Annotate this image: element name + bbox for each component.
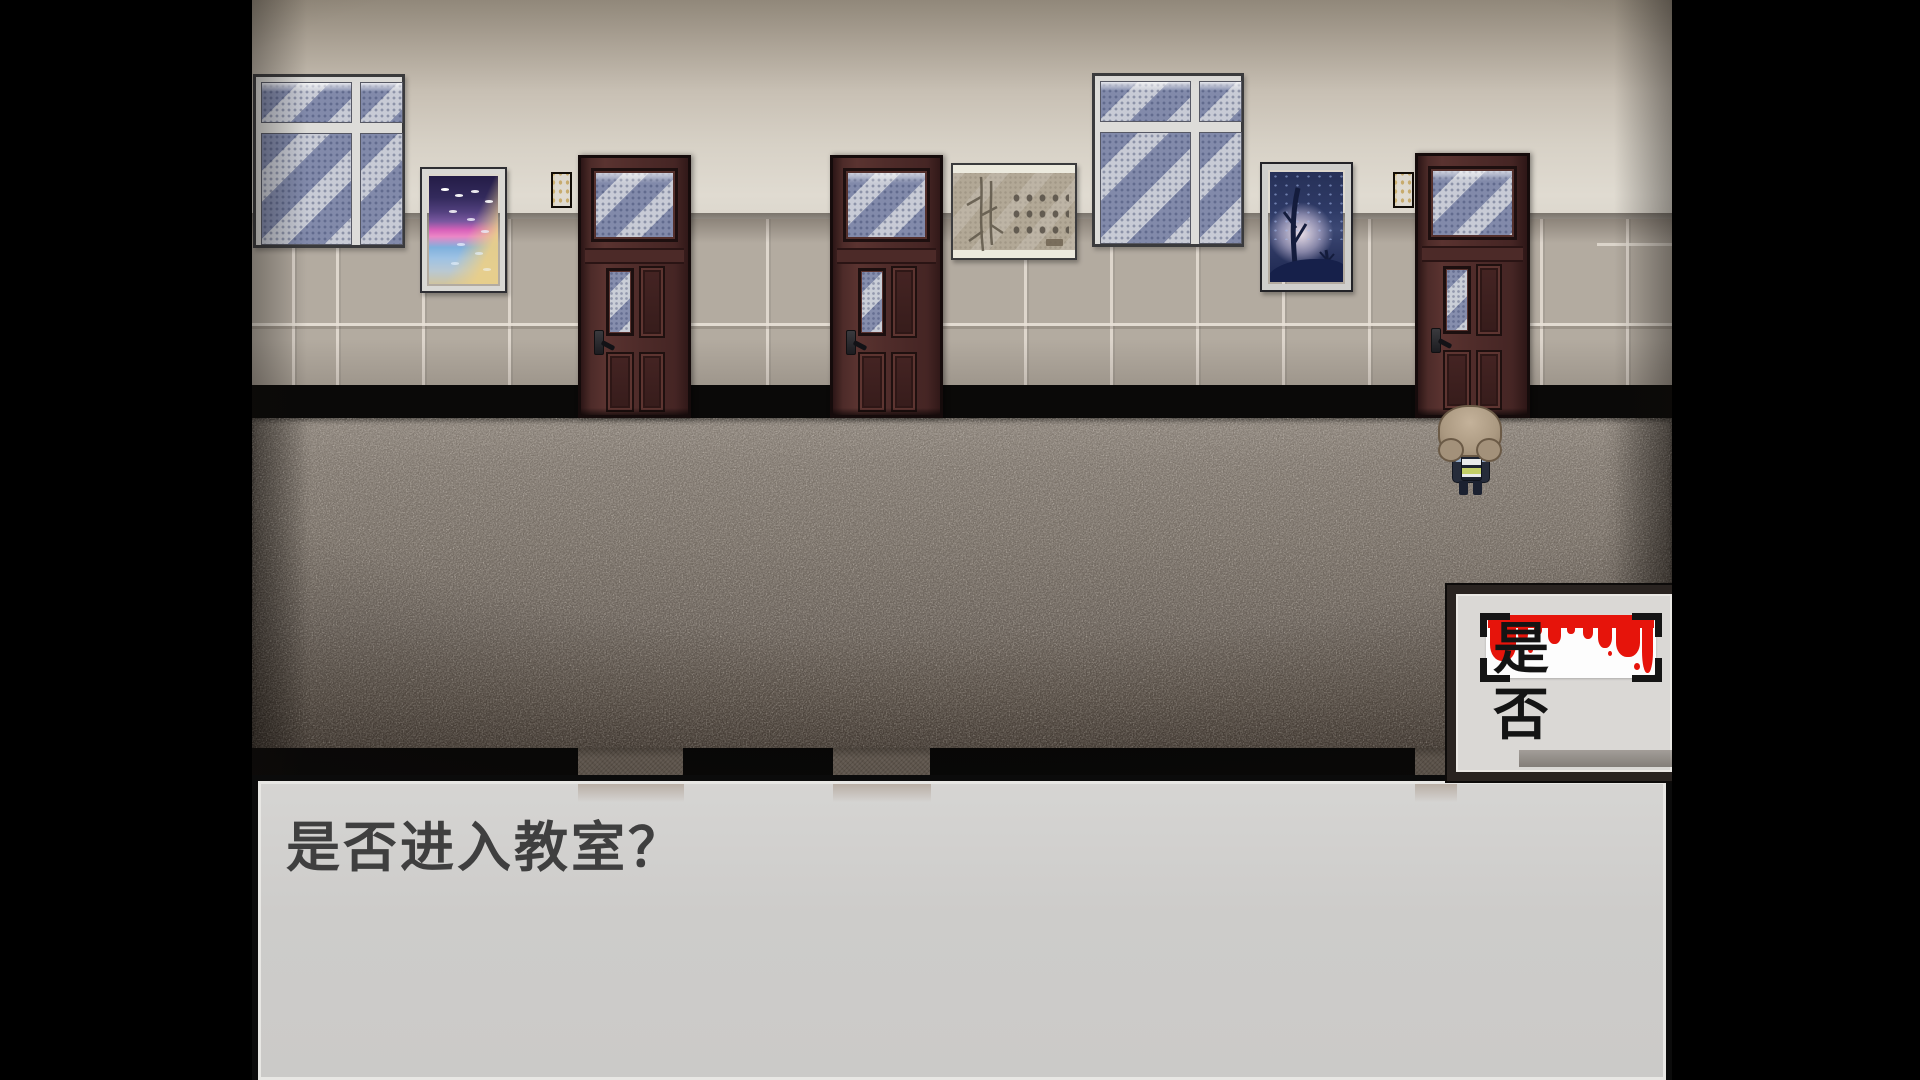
classroom-door-3 bbox=[1415, 153, 1530, 418]
letterbox-left bbox=[0, 0, 252, 1080]
night-art bbox=[1270, 172, 1343, 282]
message-window[interactable]: 是否进入教室？ bbox=[252, 775, 1672, 1080]
cursor-corner-bracket bbox=[1632, 613, 1662, 637]
choice-option-yes[interactable]: 是 bbox=[1493, 622, 1549, 678]
letterbox-right bbox=[1672, 0, 1920, 1080]
dialogue-text: 是否进入教室？ bbox=[286, 803, 685, 882]
choice-option-no[interactable]: 否 bbox=[1493, 688, 1549, 744]
door-panel bbox=[1443, 350, 1471, 410]
door-plaque-2 bbox=[1393, 172, 1414, 208]
seaside-sunset-painting bbox=[420, 167, 507, 293]
classroom-door-2 bbox=[830, 155, 943, 418]
door-mat-1 bbox=[578, 748, 683, 775]
mat-tint bbox=[1415, 784, 1457, 802]
window-pane bbox=[261, 82, 352, 123]
door-glass-slit bbox=[1443, 266, 1471, 334]
player-leg bbox=[1473, 481, 1482, 495]
player-leg bbox=[1459, 481, 1468, 495]
calligraphy-text-blocks bbox=[1007, 187, 1069, 235]
player-character bbox=[1438, 403, 1504, 493]
window-pane bbox=[1100, 132, 1191, 244]
classroom-door-1 bbox=[578, 155, 691, 418]
door-transom-window bbox=[843, 168, 930, 242]
cursor-corner-bracket bbox=[1632, 658, 1662, 682]
door-panel bbox=[1476, 264, 1502, 336]
window-pane bbox=[261, 133, 352, 245]
mat-tint bbox=[578, 784, 684, 802]
door-plaque-1 bbox=[551, 172, 572, 208]
night-trees-painting bbox=[1260, 162, 1353, 292]
window-pane bbox=[1199, 132, 1242, 244]
door-transom-window bbox=[1428, 166, 1517, 240]
window-pane bbox=[360, 82, 403, 123]
hall-window-right bbox=[1092, 73, 1244, 247]
door-panel bbox=[606, 352, 634, 412]
window-pane bbox=[360, 133, 403, 245]
door-midrail bbox=[1422, 246, 1523, 262]
door-panel bbox=[891, 266, 917, 338]
window-pane bbox=[1100, 81, 1191, 122]
door-glass-slit bbox=[606, 268, 634, 336]
door-panel bbox=[639, 352, 665, 412]
door-handle bbox=[594, 330, 604, 355]
door-panel bbox=[639, 266, 665, 338]
door-panel bbox=[891, 352, 917, 412]
door-transom-window bbox=[591, 168, 678, 242]
door-mat-2 bbox=[833, 748, 930, 775]
window-pane bbox=[1199, 81, 1242, 122]
bamboo-ink-drawing bbox=[961, 175, 1005, 253]
player-hair bbox=[1438, 405, 1502, 457]
tile-grout-segment bbox=[1597, 243, 1672, 246]
calligraphy-signature bbox=[1046, 239, 1063, 246]
door-mat-3 bbox=[1415, 748, 1449, 775]
choice-window-shade bbox=[1519, 750, 1672, 767]
hallway-scene: 是否进入教室？ 是 否 bbox=[252, 0, 1672, 1080]
door-midrail bbox=[837, 248, 936, 264]
door-handle bbox=[846, 330, 856, 355]
seagull-marks bbox=[441, 188, 449, 191]
door-midrail bbox=[585, 248, 684, 264]
door-glass-slit bbox=[858, 268, 886, 336]
door-handle bbox=[1431, 328, 1441, 353]
door-panel bbox=[858, 352, 886, 412]
hall-window-left bbox=[253, 74, 405, 248]
game-screen: 是否进入教室？ 是 否 bbox=[0, 0, 1920, 1080]
seaside-art bbox=[429, 176, 498, 284]
calligraphy-scroll bbox=[951, 163, 1077, 260]
door-panel bbox=[1476, 350, 1502, 410]
mat-tint bbox=[833, 784, 931, 802]
